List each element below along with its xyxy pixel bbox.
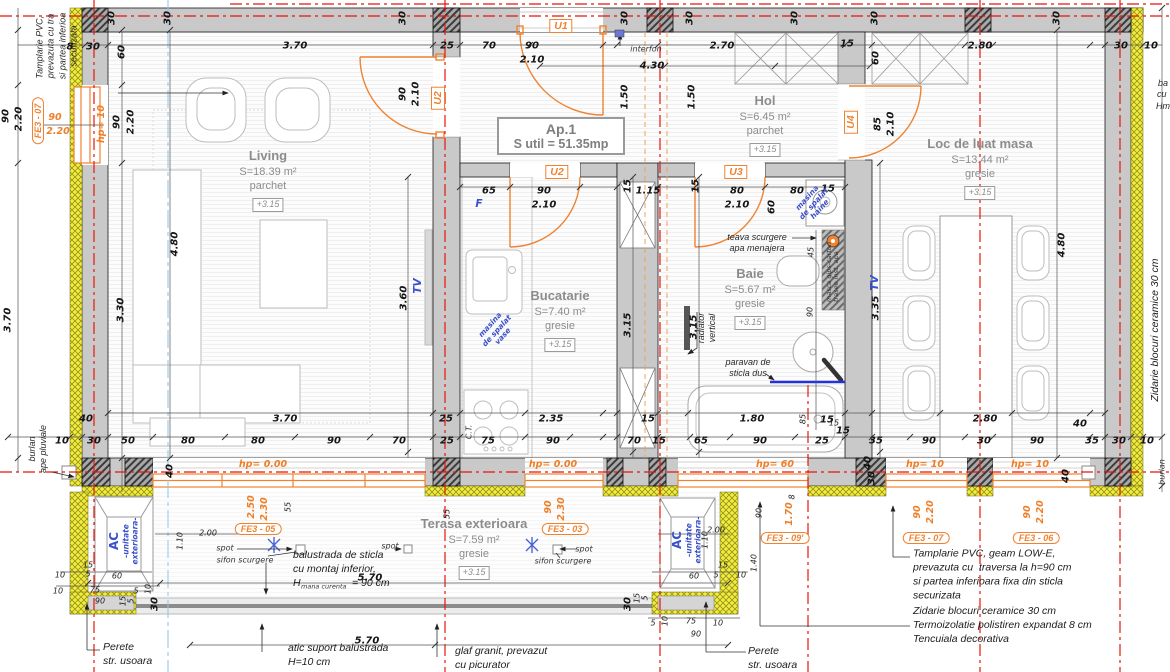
dim-label: hp= 10	[97, 105, 107, 143]
window-label: FE3 - 07	[903, 532, 950, 544]
dim-label: 2.30	[557, 497, 567, 520]
dim-label: 8	[67, 42, 74, 53]
dim-label: 50	[121, 436, 135, 447]
dim-label: AC	[671, 531, 683, 549]
dim-label: 15	[83, 562, 93, 571]
dim-label: 1.50	[687, 85, 698, 110]
dim-label: 15	[820, 415, 834, 426]
dim-label: 1.70	[785, 502, 795, 525]
dim-label: 15	[691, 179, 702, 193]
dim-label: 1.50	[620, 85, 631, 110]
dim-label: 65	[694, 436, 708, 447]
dim-label: 10	[1144, 41, 1158, 52]
dim-label: 80	[730, 186, 744, 197]
dim-label: 90	[546, 436, 560, 447]
dim-label: C.T.	[466, 425, 475, 440]
dim-label: 10	[736, 572, 746, 581]
dim-label: 3.70	[283, 41, 308, 52]
dim-label: 10	[53, 588, 63, 597]
dim-label: burlan ape pluviale	[27, 425, 50, 473]
dim-label: ba cu Hm	[1156, 78, 1170, 112]
dim-label: 2.70	[710, 41, 735, 52]
dim-label: 75	[90, 587, 100, 596]
dim-label: 90	[1023, 505, 1033, 518]
dim-label: spot	[216, 545, 233, 554]
dim-label: 1.10	[177, 532, 186, 550]
dim-label: 40	[165, 464, 176, 478]
dim-label: Zidarie blocuri ceramice 30 cm Termoizol…	[913, 605, 1092, 647]
dim-label: 90	[95, 598, 105, 607]
dim-label: 15	[623, 179, 634, 193]
dim-label: mana curenta	[301, 583, 347, 590]
dim-label: 60	[117, 45, 128, 59]
room-area: S=13.44 m²	[927, 153, 1032, 167]
apartment-area-label: S util = 51.35mp	[499, 137, 623, 151]
dim-label: 15	[840, 39, 854, 50]
dim-label: 5	[133, 588, 138, 597]
dim-label: 90	[753, 436, 767, 447]
dim-label: 30	[870, 11, 881, 25]
dim-label: 90	[544, 500, 554, 513]
dim-label: TV	[413, 278, 425, 293]
dim-label: 55	[285, 502, 294, 512]
dim-label: 15	[821, 184, 835, 195]
room-label-bucatarie: BucatarieS=7.40 m²gresie+3.15	[530, 288, 589, 354]
dim-label: -unitate exterioara-	[122, 518, 139, 565]
dim-label: 90	[691, 631, 701, 640]
dim-label: 60	[689, 573, 699, 582]
dim-label: 90	[922, 436, 936, 447]
room-name: Living	[239, 148, 296, 165]
dim-label: 2.35	[539, 414, 564, 425]
dim-label: 30	[163, 11, 174, 25]
room-level-badge: +3.15	[750, 143, 781, 157]
dim-label: 15	[641, 414, 655, 425]
dim-label: 2.10	[532, 200, 557, 211]
annotation-layer: Ap.1 S util = 51.35mp 3.702570902.104.30…	[0, 0, 1170, 672]
dim-label: 4.80	[1057, 233, 1068, 258]
dim-label: paravan de sticla dus	[725, 357, 770, 380]
dim-label: 45	[808, 247, 817, 257]
dim-label: 30	[620, 11, 631, 25]
dim-label: 90	[525, 41, 539, 52]
room-label-loc-masa: Loc de luat masaS=13.44 m²gresie+3.15	[927, 136, 1032, 202]
dim-label: 35	[869, 436, 883, 447]
apartment-label: Ap.1	[499, 121, 623, 137]
door-label: U2	[545, 165, 568, 179]
dim-label: 2.20	[1036, 500, 1046, 523]
dim-label: = 90 cm	[352, 577, 390, 591]
dim-label: 2.80	[968, 41, 993, 52]
dim-label: 90	[1030, 436, 1044, 447]
dim-label: glaf granit, prevazut cu picurator	[455, 645, 547, 672]
dim-label: 30	[87, 436, 101, 447]
dim-label: 60	[112, 573, 122, 582]
dim-label: 2.00	[707, 527, 725, 536]
dim-label: 30	[398, 11, 409, 25]
room-label-terasa: Terasa exterioaraS=7.59 m²gresie+3.15	[421, 516, 528, 582]
dim-label: radiator vertical	[696, 313, 719, 344]
dim-label: Tamplarie PVC, geam LOW-E, prevazuta cu …	[913, 547, 1071, 602]
dim-label: burlan	[1159, 459, 1168, 485]
dim-label: 3.70	[273, 414, 298, 425]
dim-label: 30	[1112, 436, 1126, 447]
window-label: FE3 - 03	[542, 523, 589, 535]
dim-label: 10	[145, 584, 154, 594]
dim-label: 70	[392, 436, 406, 447]
dim-label: 2.10	[411, 82, 422, 107]
dim-label: atic suport balustrada H=10 cm	[288, 642, 388, 670]
dim-label: 90	[48, 113, 61, 123]
room-floor: gresie	[421, 547, 528, 561]
room-name: Terasa exterioara	[421, 516, 528, 533]
dim-label: 80	[251, 436, 265, 447]
dim-label: Perete str. usoara	[103, 641, 152, 669]
dim-label: 10	[55, 436, 69, 447]
room-name: Bucatarie	[530, 288, 589, 305]
dim-label: 5	[642, 595, 651, 600]
dim-label: 3.70	[3, 308, 14, 333]
dim-label: 55	[444, 509, 453, 519]
dim-label: 2.50	[247, 495, 257, 518]
dim-label: 90	[756, 508, 765, 518]
dim-label: 15	[120, 596, 129, 606]
dim-label: 3.35	[871, 296, 882, 321]
dim-label: 30	[107, 11, 118, 25]
room-label-baie: BaieS=5.67 m²gresie+3.15	[724, 266, 775, 332]
room-label-living: LivingS=18.39 m²parchet+3.15	[239, 148, 296, 214]
dim-label: 15	[829, 420, 839, 429]
dim-label: 2.20	[46, 127, 69, 137]
window-label: FE3 - 09'	[761, 532, 810, 544]
dim-label: 3.30	[116, 298, 127, 323]
dim-label: hp= 10	[1011, 460, 1049, 470]
door-label: U2	[431, 86, 445, 109]
dim-label: 30	[1114, 41, 1128, 52]
dim-label: 5	[650, 620, 655, 629]
dim-label: 15	[718, 562, 728, 571]
window-label: FE3 - 06	[1013, 532, 1060, 544]
dim-label: 90	[112, 115, 123, 129]
dim-label: 5	[713, 572, 718, 581]
dim-label: Zidarie blocuri ceramice 30 cm	[1149, 259, 1163, 402]
window-label: FE3 - 05	[235, 523, 282, 535]
dim-label: 4.80	[170, 232, 181, 257]
dim-label: 3.60	[399, 286, 410, 311]
dim-label: 2.80	[973, 414, 998, 425]
dim-label: 70	[482, 41, 496, 52]
dim-label: 30	[623, 597, 634, 611]
dim-label: masina de spalat vase	[474, 308, 519, 354]
dim-label: teava scurgere apa menajera	[727, 232, 787, 255]
dim-label: 5.70	[358, 573, 383, 584]
dim-label: masca gips-carton trasee inst. apa	[826, 242, 840, 302]
dim-label: 5	[85, 571, 90, 580]
floor-plan-canvas: Ap.1 S util = 51.35mp 3.702570902.104.30…	[0, 0, 1170, 672]
dim-label: 40	[1073, 419, 1087, 430]
dim-label: 5.70	[355, 636, 380, 647]
dim-label: 1.80	[740, 414, 765, 425]
dim-label: 2.20	[126, 110, 137, 135]
dim-label: 2.20	[926, 500, 936, 523]
dim-label: 60	[871, 51, 882, 65]
room-area: S=18.39 m²	[239, 165, 296, 179]
dim-label: 80	[790, 186, 804, 197]
dim-label: 10	[55, 572, 65, 581]
room-level-badge: +3.15	[965, 186, 996, 200]
dim-label: 25	[815, 436, 829, 447]
dim-label: 15	[836, 426, 850, 437]
dim-label: 1.15	[636, 186, 661, 197]
dim-label: 25	[439, 414, 453, 425]
dim-label: interfon	[630, 46, 661, 55]
dim-label: hp= 60	[756, 460, 794, 470]
dim-label: 3.15	[623, 313, 634, 338]
dim-label: 30	[867, 471, 878, 485]
door-label: U4	[844, 110, 858, 133]
dim-label: 90	[398, 87, 409, 101]
room-label-hol: HolS=6.45 m²parchet+3.15	[739, 93, 790, 159]
dim-label: TV	[870, 275, 882, 290]
room-floor: gresie	[724, 297, 775, 311]
door-label: U3	[724, 165, 747, 179]
dim-label: F	[475, 199, 482, 211]
room-name: Baie	[724, 266, 775, 283]
dim-label: 90	[327, 436, 341, 447]
dim-label: 25	[440, 41, 454, 52]
dim-label: 2.30	[260, 497, 270, 520]
dim-label: 60	[767, 200, 778, 214]
room-name: Loc de luat masa	[927, 136, 1032, 153]
dim-label: H	[293, 577, 301, 591]
dim-label: 8	[789, 494, 798, 499]
apartment-info-box: Ap.1 S util = 51.35mp	[497, 117, 625, 155]
dim-label: 90	[913, 505, 923, 518]
dim-label: 25	[440, 436, 454, 447]
room-floor: parchet	[239, 179, 296, 193]
dim-label: Perete str. usoara	[748, 645, 797, 672]
dim-label: 10	[713, 620, 723, 629]
dim-label: AC	[108, 532, 120, 550]
dim-label: 90	[1, 109, 12, 123]
dim-label: 40	[863, 456, 874, 470]
room-area: S=6.45 m²	[739, 110, 790, 124]
room-area: S=5.67 m²	[724, 283, 775, 297]
room-area: S=7.59 m²	[421, 533, 528, 547]
room-level-badge: +3.15	[253, 198, 284, 212]
room-name: Hol	[739, 93, 790, 110]
dim-label: 4.30	[640, 61, 665, 72]
dim-label: 85	[800, 414, 809, 424]
dim-label: 30	[150, 597, 161, 611]
room-area: S=7.40 m²	[530, 305, 589, 319]
room-level-badge: +3.15	[735, 316, 766, 330]
room-floor: gresie	[530, 319, 589, 333]
dim-label: 10	[1140, 436, 1154, 447]
dim-label: 30	[1052, 11, 1063, 25]
dim-label: 90	[537, 186, 551, 197]
dim-label: 40	[79, 414, 93, 425]
dim-label: 70	[627, 436, 641, 447]
dim-label: -unitate exterioara-	[685, 517, 702, 564]
dim-label: 65	[482, 186, 496, 197]
dim-label: 2.10	[520, 55, 545, 66]
dim-label: 85	[873, 117, 884, 131]
dim-label: balustrada de sticla cu montaj inferior,	[293, 549, 383, 577]
dim-label: 1.40	[751, 554, 760, 572]
dim-label: 30	[86, 42, 100, 53]
dim-label: 80	[181, 436, 195, 447]
dim-label: 40	[1061, 469, 1072, 483]
dim-label: 75	[481, 436, 495, 447]
room-floor: parchet	[739, 124, 790, 138]
dim-label: masina de spalat haine	[791, 181, 836, 227]
room-level-badge: +3.15	[545, 338, 576, 352]
dim-label: sifon scurgere	[217, 557, 274, 566]
door-label: U1	[549, 19, 572, 33]
dim-label: 30	[790, 11, 801, 25]
dim-label: 30	[685, 11, 696, 25]
dim-label: 3.15	[689, 315, 700, 340]
dim-label: 10	[662, 616, 671, 626]
dim-label: Tamplarie PVC, prevazuta cu tra si parte…	[35, 13, 80, 80]
dim-label: 2.10	[886, 112, 897, 137]
dim-label: 5	[128, 598, 137, 603]
dim-label: 30	[977, 436, 991, 447]
window-label: FE3 - 07	[32, 98, 44, 145]
dim-label: 2.20	[14, 107, 25, 132]
room-floor: gresie	[927, 167, 1032, 181]
dim-label: 1.10	[702, 531, 711, 549]
dim-label: 35	[1085, 436, 1099, 447]
dim-label: hp= 0.00	[239, 460, 287, 470]
dim-label: hp= 0.00	[529, 460, 577, 470]
room-level-badge: +3.15	[459, 566, 490, 580]
dim-label: hp= 10	[906, 460, 944, 470]
dim-label: 90	[807, 307, 816, 317]
dim-label: 75	[686, 618, 696, 627]
dim-label: spot	[575, 546, 592, 555]
dim-label: 15	[652, 436, 666, 447]
dim-label: sifon scurgere	[535, 558, 592, 567]
dim-label: 15	[634, 593, 643, 603]
dim-label: 2.10	[725, 200, 750, 211]
dim-label: spot	[381, 543, 398, 552]
dim-label: 2.00	[199, 530, 217, 539]
